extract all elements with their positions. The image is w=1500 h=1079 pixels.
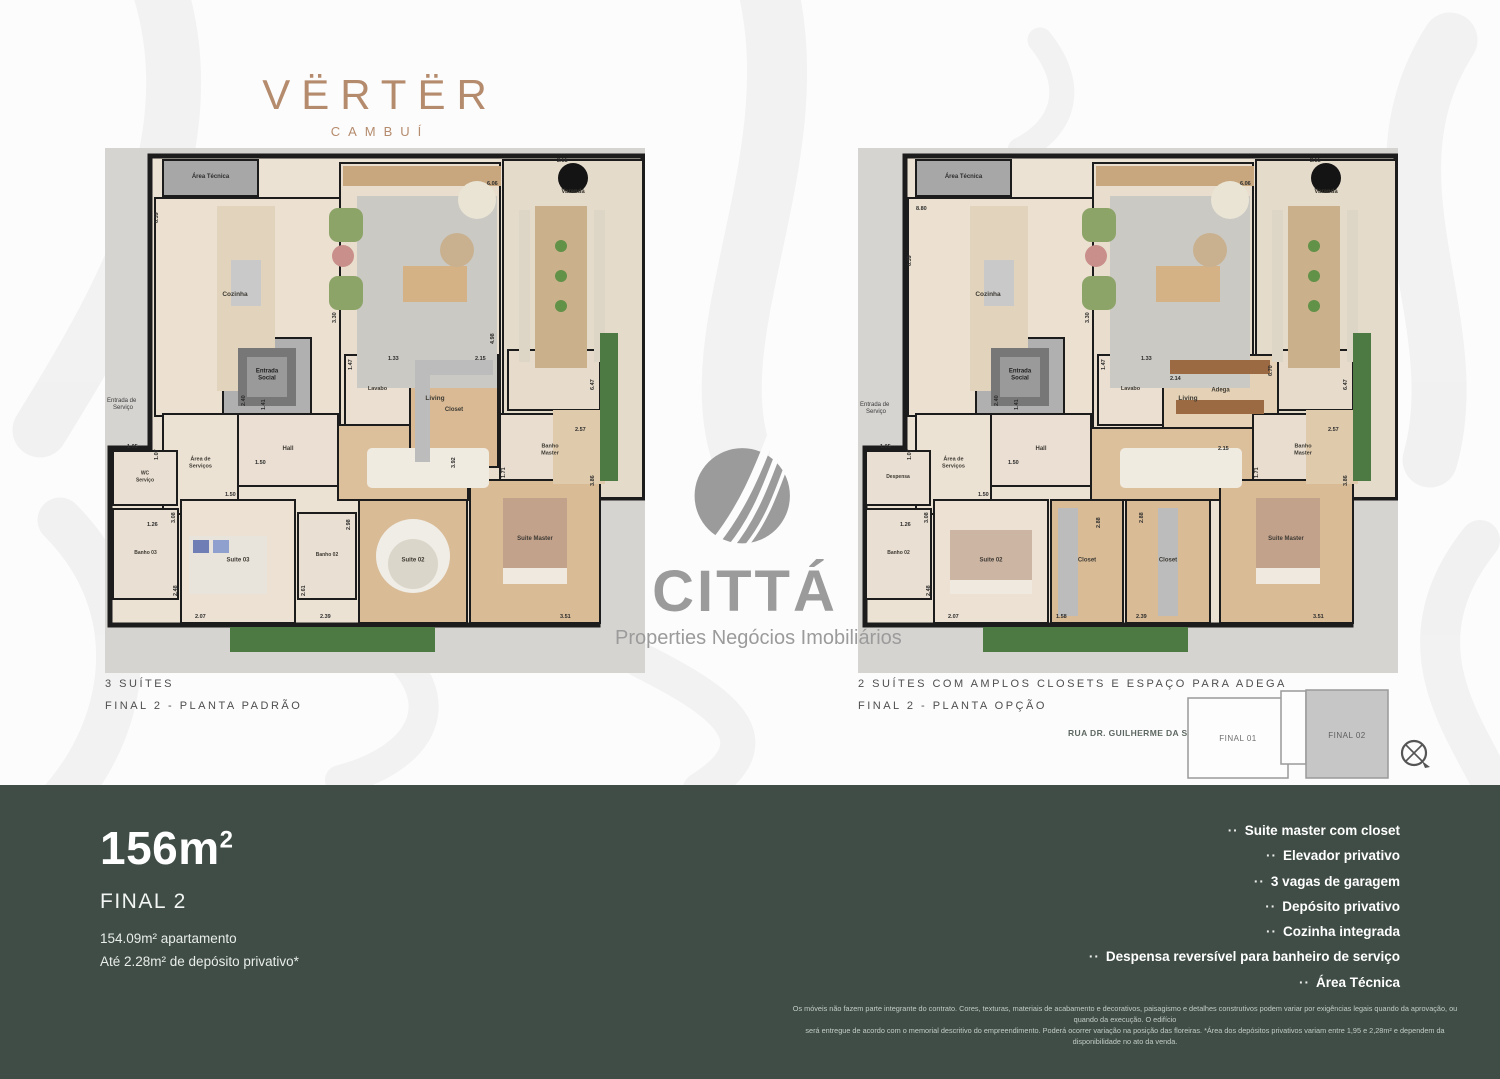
svg-text:FINAL 02: FINAL 02 <box>1328 731 1366 740</box>
dimension-label: 4.98 <box>490 333 496 344</box>
feature-list: ··Suite master com closet··Elevador priv… <box>1089 818 1400 995</box>
furniture <box>984 260 1014 306</box>
svg-text:FINAL 01: FINAL 01 <box>1219 734 1257 743</box>
dimension-label: 1.58 <box>1056 614 1067 620</box>
dimension-label: 2.61 <box>301 585 307 596</box>
room-label: Cozinha <box>975 291 1001 298</box>
dimension-label: 1.26 <box>147 522 158 528</box>
dimension-label: 3.86 <box>1343 475 1349 486</box>
furniture <box>1085 245 1107 267</box>
furniture <box>415 360 430 462</box>
furniture <box>1272 210 1283 362</box>
dimension-label: 1.07 <box>154 449 160 460</box>
dimension-label: 1.41 <box>261 399 267 410</box>
left-plan-caption-2: FINAL 2 - PLANTA PADRÃO <box>105 700 302 712</box>
left-plan-caption-1: 3 SUÍTES <box>105 678 174 690</box>
citta-logo: CITTÁ Properties Negócios Imobiliários <box>615 432 875 650</box>
furniture <box>1176 400 1264 414</box>
furniture <box>555 240 567 252</box>
dimension-label: 1.47 <box>348 359 354 370</box>
dimension-label: 3.30 <box>332 312 338 323</box>
room-label: Banho 02 <box>316 552 339 558</box>
room-label: Banho 02 <box>887 550 910 556</box>
dimension-label: 6.39 <box>154 212 160 223</box>
furniture <box>388 539 438 589</box>
apartment-area-detail: 154.09m² apartamento <box>100 931 237 946</box>
dimension-label: 2.39 <box>1136 614 1147 620</box>
furniture <box>230 627 435 652</box>
room-label: Closet <box>445 407 463 413</box>
building-keyplan: FINAL 01 FINAL 02 <box>1185 688 1400 783</box>
dimension-label: 6.06 <box>487 181 498 187</box>
furniture <box>1256 568 1320 584</box>
room-label: Suite 03 <box>226 558 250 564</box>
dimension-label: 2.07 <box>195 614 206 620</box>
room-label: Área Técnica <box>945 173 983 180</box>
furniture <box>1308 270 1320 282</box>
floor-plan-opcao: Área TécnicaCozinhaLivingVarandaHallÁrea… <box>858 148 1398 673</box>
furniture <box>1170 360 1270 374</box>
deposit-area-detail: Até 2.28m² de depósito privativo* <box>100 954 299 969</box>
dimension-label: 2.55 <box>557 158 568 164</box>
furniture <box>553 410 605 484</box>
dimension-label: 6.47 <box>590 379 596 390</box>
furniture <box>440 233 474 267</box>
dimension-label: 1.41 <box>1014 399 1020 410</box>
room-label: EntradaSocial <box>256 369 279 382</box>
furniture <box>329 208 363 242</box>
brand-name: VËRTËR <box>240 74 520 116</box>
furniture <box>1308 300 1320 312</box>
citta-tagline: Properties Negócios Imobiliários <box>615 627 875 650</box>
furniture <box>555 270 567 282</box>
dimension-label: 2.88 <box>1096 517 1102 528</box>
room-label: Living <box>1178 395 1197 402</box>
furniture <box>503 568 567 584</box>
dimension-label: 2.15 <box>1218 446 1229 452</box>
furniture <box>329 276 363 310</box>
room-label: Closet <box>1159 558 1177 564</box>
dimension-label: 2.88 <box>1139 512 1145 523</box>
feature-item: ··Depósito privativo <box>1089 894 1400 919</box>
dimension-label: 1.50 <box>1008 460 1019 466</box>
dimension-label: 2.07 <box>948 614 959 620</box>
right-plan-caption-2: FINAL 2 - PLANTA OPÇÃO <box>858 700 1047 712</box>
dimension-label: 3.08 <box>171 512 177 523</box>
dimension-label: 3.86 <box>590 475 596 486</box>
dimension-label: 6.47 <box>1343 379 1349 390</box>
furniture <box>213 540 229 553</box>
furniture <box>983 627 1188 652</box>
dimension-label: 1.05 <box>880 444 891 450</box>
dimension-label: 1.50 <box>978 492 989 498</box>
dimension-label: 2.15 <box>475 356 486 362</box>
dimension-label: 2.57 <box>1328 427 1339 433</box>
room-label: BanhoMaster <box>541 444 560 457</box>
dimension-label: 2.48 <box>173 585 179 596</box>
furniture <box>1120 448 1242 488</box>
dimension-label: 1.71 <box>501 467 507 478</box>
furniture <box>1058 508 1078 616</box>
footer-band: 156m2 FINAL 2 154.09m² apartamento Até 2… <box>0 785 1500 1079</box>
legal-line-1: Os móveis não fazem parte integrante do … <box>785 1003 1465 1025</box>
final-label: FINAL 2 <box>100 890 187 914</box>
furniture <box>231 260 261 306</box>
dimension-label: 2.39 <box>320 614 331 620</box>
room-label: BanhoMaster <box>1294 444 1313 457</box>
dimension-label: 3.08 <box>924 512 930 523</box>
compass-icon <box>1397 736 1437 776</box>
legal-fine-print: Os móveis não fazem parte integrante do … <box>785 1003 1465 1047</box>
feature-item: ··Elevador privativo <box>1089 843 1400 868</box>
room-label: Suite 02 <box>401 558 425 564</box>
feature-item: ··Suite master com closet <box>1089 818 1400 843</box>
brand-subtitle: CAMBUÍ <box>240 124 520 139</box>
dimension-label: 6.39 <box>907 255 913 266</box>
furniture <box>950 580 1032 594</box>
dimension-label: 1.47 <box>1101 359 1107 370</box>
dimension-label: 2.55 <box>1310 158 1321 164</box>
dimension-label: 1.50 <box>225 492 236 498</box>
dimension-label: 6.06 <box>1240 181 1251 187</box>
dimension-label: 2.98 <box>346 519 352 530</box>
feature-item: ··Cozinha integrada <box>1089 919 1400 944</box>
room-label: Cozinha <box>222 291 248 298</box>
furniture <box>1156 266 1220 302</box>
room-label: Banho 03 <box>134 550 157 556</box>
area-superscript: 2 <box>220 827 234 854</box>
citta-swoosh-icon <box>690 432 800 554</box>
room-label: Lavabo <box>368 386 388 392</box>
room-label: Suite Master <box>517 536 553 542</box>
dimension-label: 3.51 <box>1313 614 1324 620</box>
dimension-label: 1.50 <box>255 460 266 466</box>
dimension-label: 1.71 <box>1254 467 1260 478</box>
furniture <box>555 300 567 312</box>
furniture <box>1308 240 1320 252</box>
dimension-label: 3.92 <box>451 457 457 468</box>
furniture <box>1082 276 1116 310</box>
citta-wordmark: CITTÁ <box>615 563 875 621</box>
room-label: Closet <box>1078 558 1096 564</box>
dimension-label: 1.05 <box>127 444 138 450</box>
furniture <box>1082 208 1116 242</box>
floor-plan-padrao: Área TécnicaCozinhaLivingVarandaHallÁrea… <box>105 148 645 673</box>
room-label: Suite Master <box>1268 536 1304 542</box>
furniture <box>1306 410 1358 484</box>
legal-line-2: será entregue de acordo com o memorial d… <box>785 1025 1465 1047</box>
dimension-label: 1.33 <box>388 356 399 362</box>
room-label: Suite 02 <box>979 558 1003 564</box>
furniture <box>193 540 209 553</box>
dimension-label: 1.33 <box>1141 356 1152 362</box>
dimension-label: 3.51 <box>560 614 571 620</box>
room-label: Despensa <box>886 474 910 480</box>
furniture <box>1288 206 1340 368</box>
area-headline: 156m2 <box>100 821 234 875</box>
room-label: Varanda <box>561 189 585 195</box>
room-label: Adega <box>1211 388 1230 394</box>
dimension-label: 8.80 <box>916 206 927 212</box>
brand-logo: VËRTËR CAMBUÍ <box>240 74 520 139</box>
dimension-label: 2.57 <box>575 427 586 433</box>
furniture <box>403 266 467 302</box>
room-label: Varanda <box>1314 189 1338 195</box>
dimension-label: 1.26 <box>900 522 911 528</box>
furniture <box>535 206 587 368</box>
feature-item: ··Despensa reversível para banheiro de s… <box>1089 944 1400 969</box>
feature-item: ··3 vagas de garagem <box>1089 869 1400 894</box>
dimension-label: 1.07 <box>907 449 913 460</box>
dimension-label: 3.30 <box>1085 312 1091 323</box>
furniture <box>1353 333 1371 481</box>
furniture <box>519 210 530 362</box>
dimension-label: 2.48 <box>926 585 932 596</box>
room-label: EntradaSocial <box>1009 369 1032 382</box>
dimension-label: 2.14 <box>1170 376 1182 382</box>
room-label: Lavabo <box>1121 386 1141 392</box>
dimension-label: 6.70 <box>1268 365 1274 376</box>
room-label: Área Técnica <box>192 173 230 180</box>
furniture <box>1193 233 1227 267</box>
furniture <box>332 245 354 267</box>
room-label: Hall <box>282 446 293 452</box>
dimension-label: 2.40 <box>241 395 247 406</box>
room-label: Hall <box>1035 446 1046 452</box>
dimension-label: 2.40 <box>994 395 1000 406</box>
room-label: Living <box>425 395 444 402</box>
feature-item: ··Área Técnica <box>1089 970 1400 995</box>
